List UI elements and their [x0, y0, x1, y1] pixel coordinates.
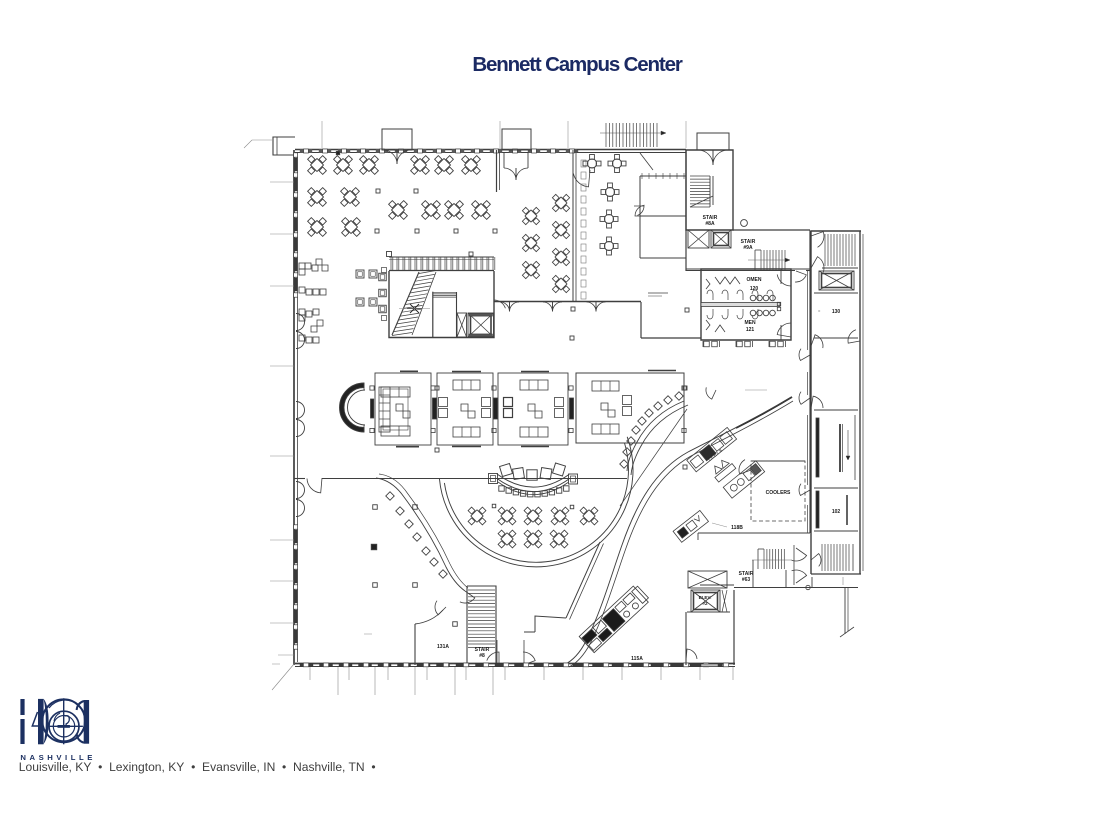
svg-text:102: 102 — [832, 509, 841, 515]
svg-text:118B: 118B — [731, 525, 743, 531]
svg-text:ELEV.: ELEV. — [699, 595, 712, 600]
svg-text:#8: #8 — [479, 653, 485, 659]
svg-text:121: 121 — [746, 327, 755, 333]
svg-text:131A: 131A — [437, 644, 449, 650]
svg-text:#63: #63 — [742, 577, 751, 583]
svg-text:COOLERS: COOLERS — [766, 490, 791, 496]
svg-text:#9A: #9A — [743, 245, 753, 251]
svg-text:OMEN: OMEN — [747, 277, 762, 283]
svg-text:#2: #2 — [702, 601, 708, 606]
svg-text:=: = — [818, 308, 821, 313]
svg-text:#8A: #8A — [705, 221, 715, 227]
svg-text:130: 130 — [832, 309, 841, 315]
svg-text:MEN: MEN — [744, 320, 756, 326]
svg-text:115A: 115A — [631, 656, 643, 662]
